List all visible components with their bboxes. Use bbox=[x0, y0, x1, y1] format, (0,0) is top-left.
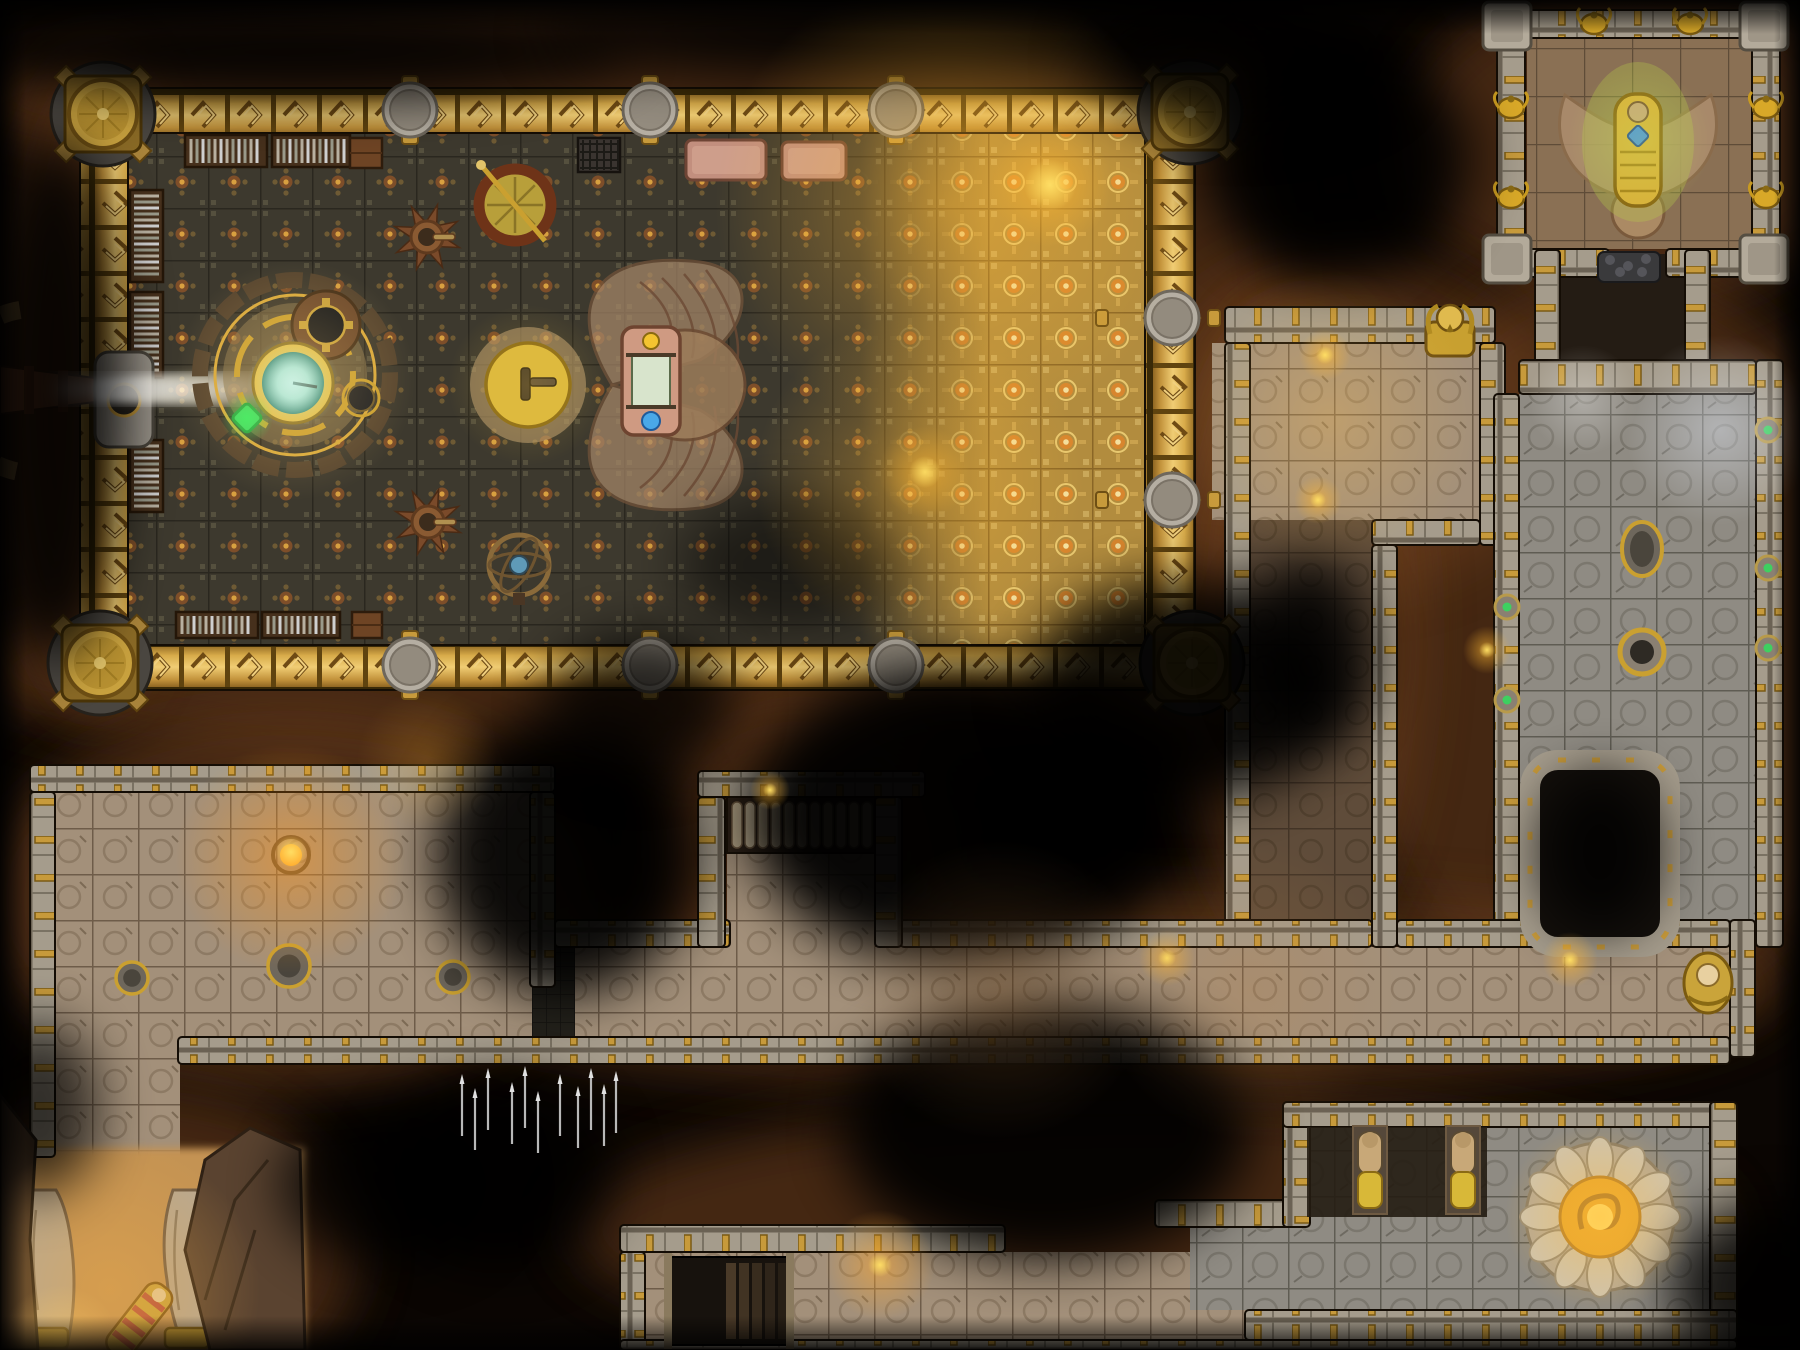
rubble-pile-stone bbox=[1623, 261, 1633, 271]
standing-mummy-2-head bbox=[1455, 1132, 1471, 1148]
bookshelf-west-3[interactable] bbox=[130, 440, 163, 512]
light-glow-25 bbox=[1100, 840, 1400, 1140]
bookshelf-south-1[interactable] bbox=[176, 612, 258, 638]
zodiac-wheel[interactable] bbox=[476, 160, 551, 241]
rubble-pile-stone bbox=[1637, 267, 1647, 277]
armillary-sphere-base bbox=[513, 593, 525, 605]
light-glow-19 bbox=[1479, 642, 1495, 658]
standing-mummy-2-wrap bbox=[1451, 1172, 1475, 1208]
light-glow-27 bbox=[275, 836, 307, 868]
wall-scarab-6-head bbox=[1763, 186, 1770, 193]
pillar-east-2-cap-inner bbox=[1152, 480, 1192, 520]
sun-medallion-2-handle bbox=[434, 519, 456, 525]
standing-mummy-2[interactable] bbox=[1446, 1126, 1480, 1214]
crypt-wall-north bbox=[1283, 1102, 1713, 1127]
battlemap-svg bbox=[0, 0, 1800, 1350]
wall-emblem-1 bbox=[1495, 595, 1519, 619]
light-glow-35 bbox=[357, 690, 497, 830]
light-glow-29 bbox=[868, 1253, 892, 1277]
wall-scarab-4-head bbox=[1508, 186, 1515, 193]
light-glow-8 bbox=[221, 392, 273, 444]
east-corridor-wall-east-lower bbox=[1372, 545, 1397, 947]
scroll-altar-gem-blue bbox=[642, 412, 660, 430]
bookshelf-north-2[interactable] bbox=[272, 135, 350, 167]
fog-blob-3 bbox=[545, 635, 735, 775]
vignette-top bbox=[0, 0, 1800, 34]
floor-plate-3[interactable] bbox=[437, 961, 469, 993]
main-corridor-wall-end-east bbox=[1730, 920, 1755, 1057]
fog-blob-16 bbox=[1540, 772, 1660, 932]
wall-scarab-5-head bbox=[1763, 96, 1770, 103]
vignette-bottom bbox=[0, 1316, 1800, 1350]
corner-block-3-block-top bbox=[1491, 243, 1523, 275]
standing-mummy-1[interactable] bbox=[1353, 1126, 1387, 1214]
light-glow-17 bbox=[1528, 345, 1638, 455]
stone-well-hole bbox=[1630, 640, 1654, 664]
light-glow-14 bbox=[1310, 492, 1326, 508]
pillar-east-2-tab bbox=[1096, 492, 1108, 508]
pillar-north-2-cap-inner bbox=[630, 90, 670, 130]
floor-plate-1[interactable] bbox=[116, 962, 148, 994]
light-glow-12 bbox=[1316, 346, 1334, 364]
corner-block-3 bbox=[1483, 235, 1531, 283]
fog-blob-6 bbox=[1248, 555, 1372, 745]
light-glow-34 bbox=[763, 783, 777, 797]
bookshelf-north-1[interactable] bbox=[185, 135, 267, 167]
light-glow-5 bbox=[909, 456, 941, 488]
light-glow-3 bbox=[1024, 159, 1076, 211]
rubble-pile-stone bbox=[1605, 255, 1615, 265]
rubble-pile-stone bbox=[1615, 267, 1625, 277]
wall-emblem-2 bbox=[1495, 688, 1519, 712]
light-glow-10 bbox=[1180, 270, 1480, 570]
golden-idol-statue-head bbox=[1697, 964, 1719, 986]
floor-plate-3-center bbox=[444, 968, 462, 986]
wall-emblem-5-gem bbox=[1764, 644, 1773, 653]
light-glow-9 bbox=[448, 305, 608, 465]
rubble-pile bbox=[1598, 252, 1660, 282]
rubble-pile-stone bbox=[1641, 254, 1651, 264]
sun-medallion-1-handle bbox=[433, 234, 455, 240]
stone-well[interactable] bbox=[1620, 630, 1664, 674]
corner-tower-northwest-hub bbox=[97, 108, 109, 120]
wooden-crate-north[interactable] bbox=[350, 138, 382, 168]
light-glow-30 bbox=[1505, 1122, 1695, 1312]
wall-emblem-2-gem bbox=[1503, 696, 1512, 705]
floor-plate-1-center bbox=[123, 969, 141, 987]
mummy-rack-row-figure bbox=[732, 802, 742, 848]
bookshelf-west-1[interactable] bbox=[130, 190, 163, 282]
wooden-crate-south[interactable] bbox=[352, 612, 382, 638]
scroll-altar[interactable] bbox=[622, 327, 680, 435]
mummy-closet-wall-west bbox=[698, 797, 725, 947]
vignette-right bbox=[1774, 0, 1800, 1350]
scroll-altar-gem-yellow bbox=[643, 333, 659, 349]
corner-tower-southwest-hub bbox=[94, 657, 106, 669]
bookshelf-south-2[interactable] bbox=[262, 612, 340, 638]
light-glow-15 bbox=[1568, 68, 1712, 212]
vignette-left bbox=[0, 0, 26, 1350]
pressure-plate-oval[interactable] bbox=[1622, 522, 1662, 576]
battlemap-stage bbox=[0, 0, 1800, 1350]
standing-mummy-1-wrap bbox=[1358, 1172, 1382, 1208]
grated-crate[interactable] bbox=[578, 138, 620, 172]
golden-idol-statue[interactable] bbox=[1684, 953, 1732, 1013]
wall-emblem-1-gem bbox=[1503, 603, 1512, 612]
scroll-altar-scroll bbox=[632, 355, 670, 407]
pillar-north-1-cap-inner bbox=[390, 90, 430, 130]
fog-blob-13 bbox=[280, 1105, 500, 1265]
zodiac-wheel-rod-tip bbox=[476, 160, 486, 170]
armillary-sphere-core bbox=[510, 556, 528, 574]
standing-mummy-1-head bbox=[1362, 1132, 1378, 1148]
pressure-plate-oval-center bbox=[1630, 531, 1654, 567]
light-glow-23 bbox=[1561, 951, 1579, 969]
wall-scarab-3-head bbox=[1508, 96, 1515, 103]
pillar-south-1-cap-inner bbox=[390, 645, 430, 685]
wall-emblem-4-gem bbox=[1764, 564, 1773, 573]
